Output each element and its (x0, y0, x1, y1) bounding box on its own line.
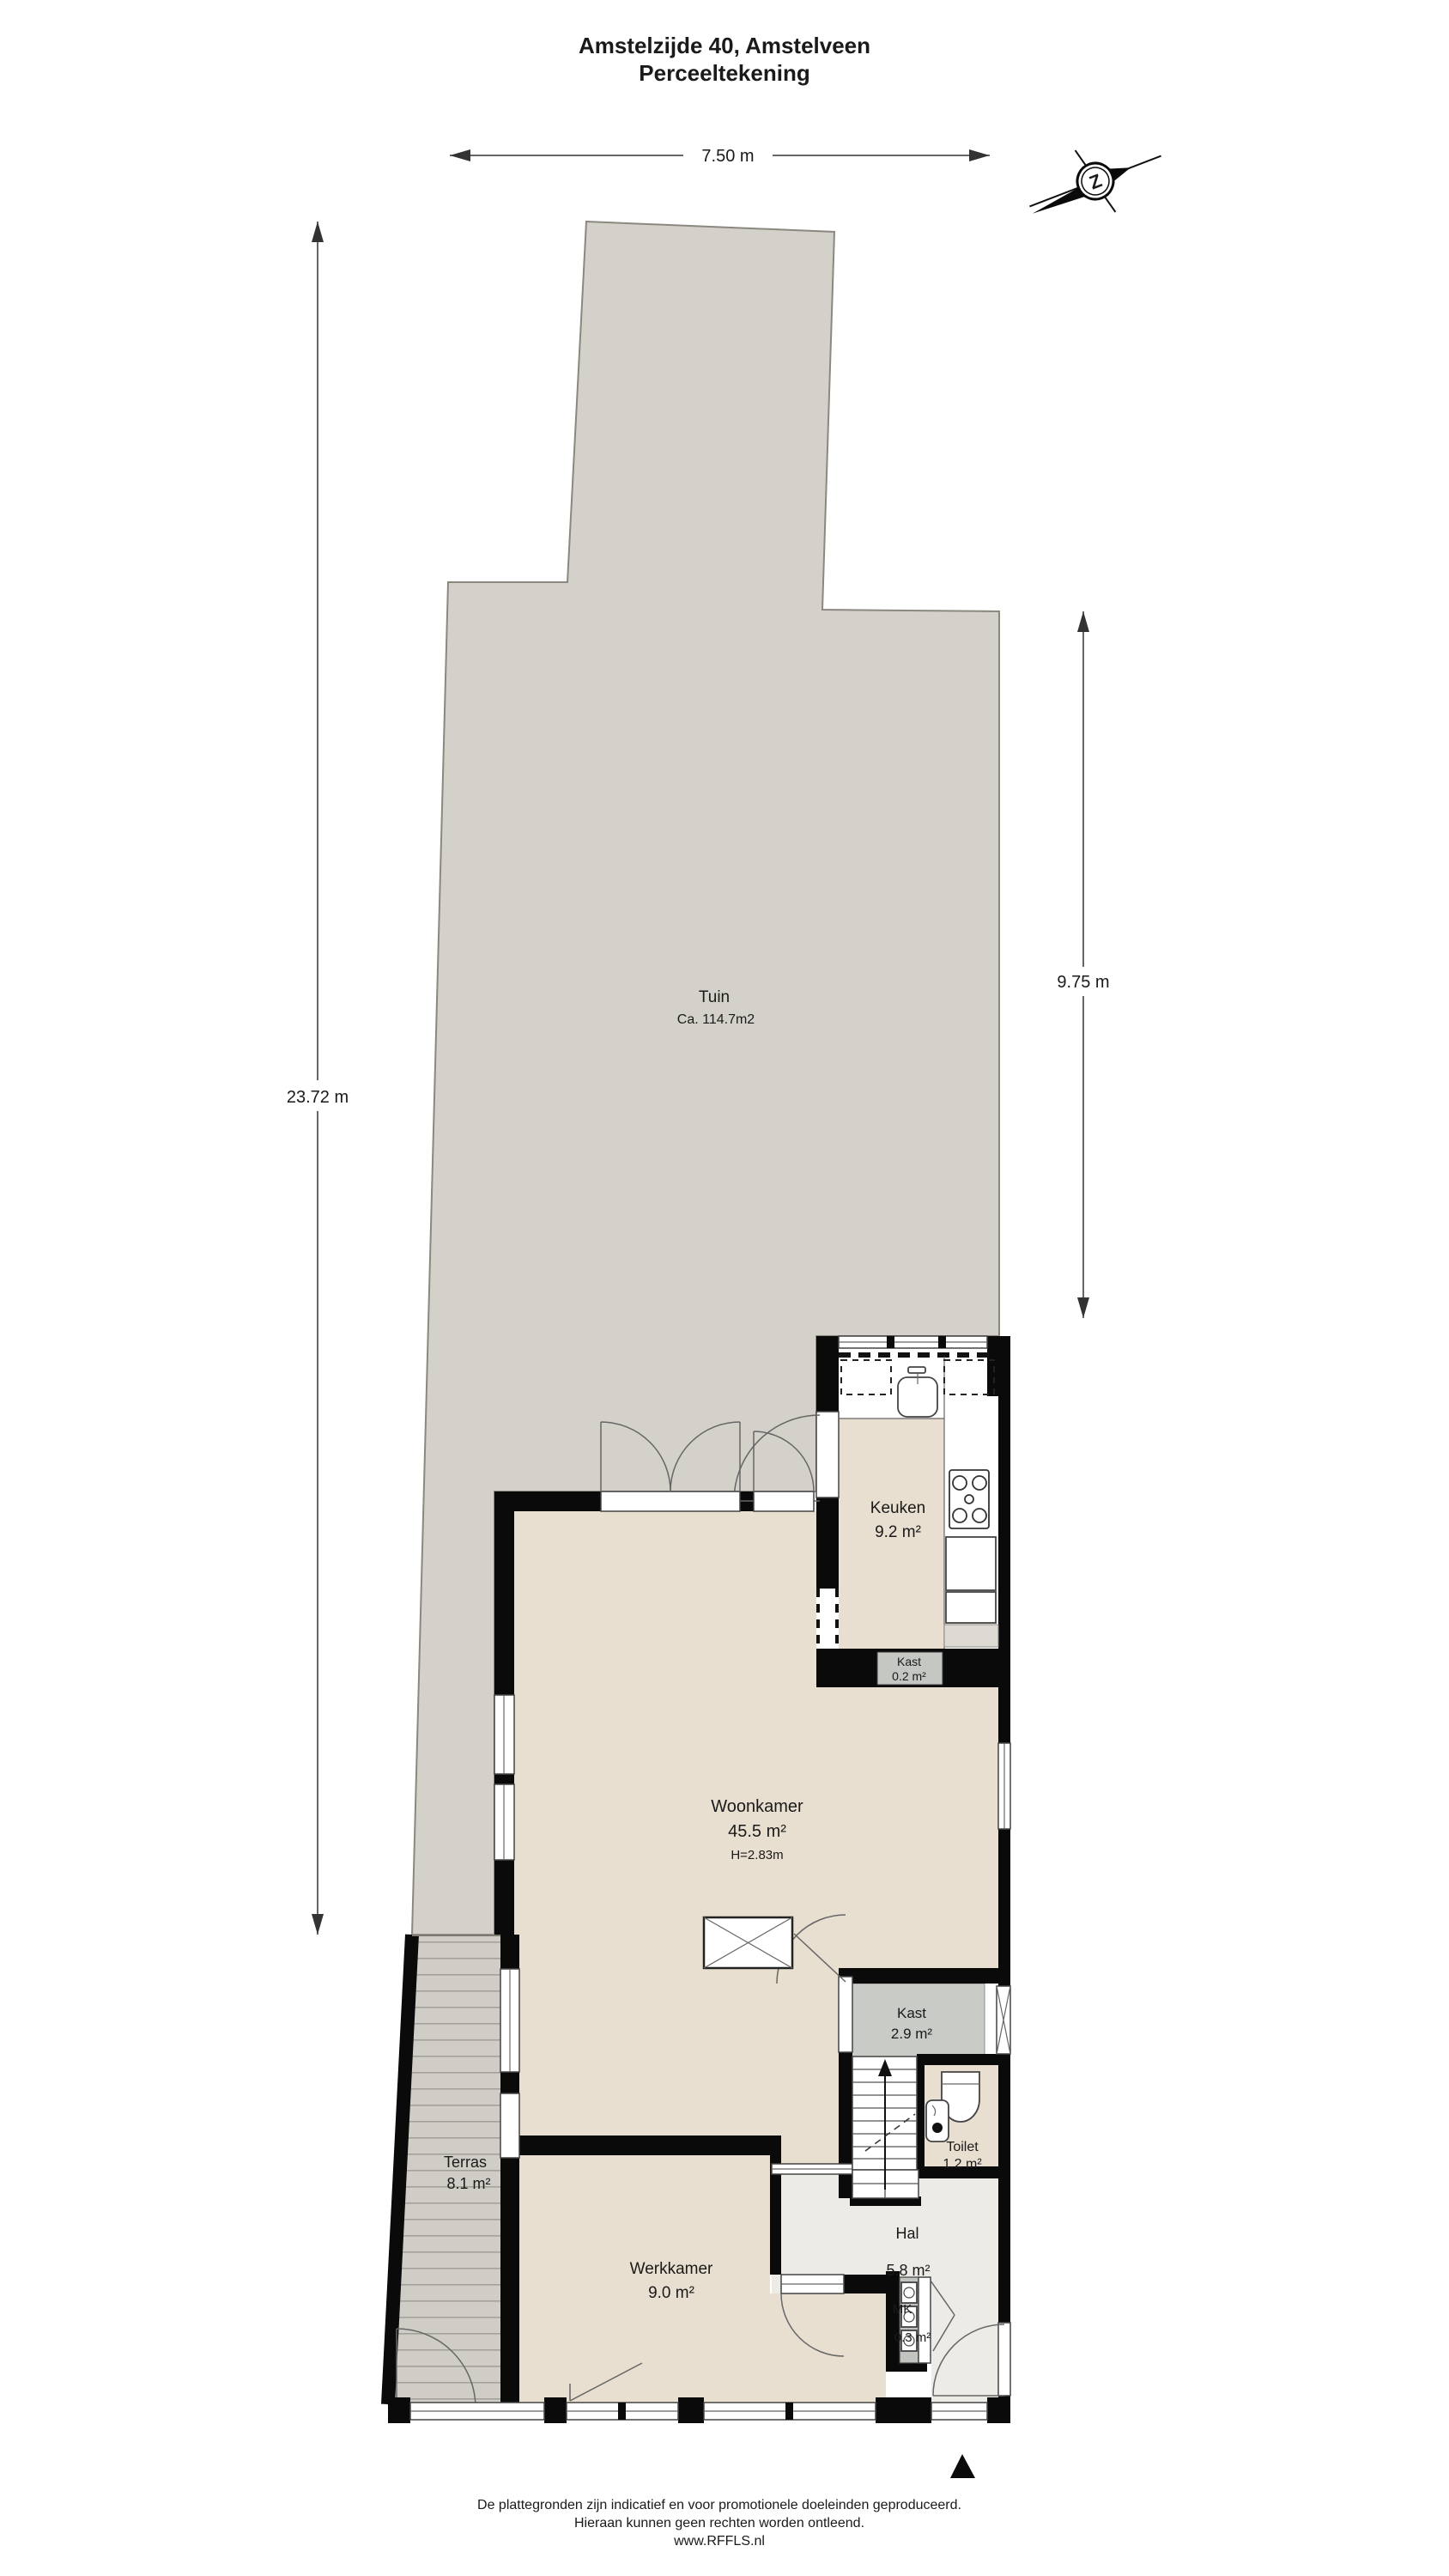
footer-disclaimer-1: De plattegronden zijn indicatief en voor… (477, 2498, 961, 2512)
label-woonkamer-name: Woonkamer (711, 1797, 803, 1816)
west-window-1 (494, 1695, 514, 1774)
label-woonkamer-area: 45.5 m² (728, 1822, 786, 1841)
dim-depth-right-label: 9.75 m (1057, 973, 1109, 992)
page-title: Amstelzijde 40, Amstelveen (579, 33, 870, 58)
label-woonkamer-height: H=2.83m (731, 1848, 783, 1862)
label-keuken-name: Keuken (870, 1499, 925, 1517)
label-toilet-name: Toilet (946, 2140, 979, 2154)
label-kast-name: Kast (897, 2005, 926, 2021)
label-kast-klein-area: 0.2 m² (892, 1669, 926, 1683)
living-hall-divider (772, 2164, 852, 2174)
label-toilet-area: 1.2 m² (943, 2157, 982, 2172)
label-werkkamer-name: Werkkamer (630, 2260, 713, 2278)
closet-window (997, 1986, 1010, 2054)
label-terras-area: 8.1 m² (446, 2175, 490, 2192)
label-hal-name: Hal (895, 2225, 919, 2242)
label-werkkamer-area: 9.0 m² (648, 2284, 694, 2302)
floorplan-page: Amstelzijde 40, Amstelveen Perceeltekeni… (0, 0, 1449, 2576)
appliance-oven (946, 1592, 996, 1623)
label-tuin-name: Tuin (699, 988, 730, 1006)
label-kast-klein-name: Kast (897, 1655, 921, 1668)
east-window (998, 1743, 1010, 1829)
label-hal-area: 5.8 m² (886, 2262, 930, 2279)
footer: De plattegronden zijn indicatief en voor… (477, 2498, 961, 2549)
dim-width-label: 7.50 m (701, 147, 754, 166)
staircase (852, 2057, 919, 2198)
north-arrow: Z (1016, 122, 1173, 240)
label-mk-area: 0.3 m² (894, 2330, 931, 2345)
stove-icon (949, 1470, 989, 1528)
footer-website: www.RFFLS.nl (673, 2534, 765, 2549)
floorplan-svg: Amstelzijde 40, Amstelveen Perceeltekeni… (0, 0, 1449, 2576)
appliance-fridge (946, 1537, 996, 1590)
toilet-sink-icon (926, 2100, 949, 2142)
label-tuin-area: Ca. 114.7m2 (677, 1012, 755, 1027)
terrace-door-opening (500, 2093, 519, 2158)
terrace-window (500, 1969, 519, 2072)
west-window-2 (494, 1784, 514, 1860)
label-mk-name: MK (893, 2302, 912, 2317)
page-subtitle: Perceeltekening (639, 60, 809, 86)
entrance-marker-triangle (950, 2454, 975, 2478)
footer-disclaimer-2: Hieraan kunnen geen rechten worden ontle… (574, 2516, 864, 2530)
label-keuken-area: 9.2 m² (875, 1523, 921, 1541)
label-kast-area: 2.9 m² (891, 2026, 933, 2042)
shaft (704, 1917, 792, 1968)
title-block: Amstelzijde 40, Amstelveen Perceeltekeni… (579, 33, 870, 86)
dim-depth-left-label: 23.72 m (287, 1088, 349, 1107)
counter-end (944, 1625, 998, 1647)
label-terras-name: Terras (444, 2154, 487, 2171)
